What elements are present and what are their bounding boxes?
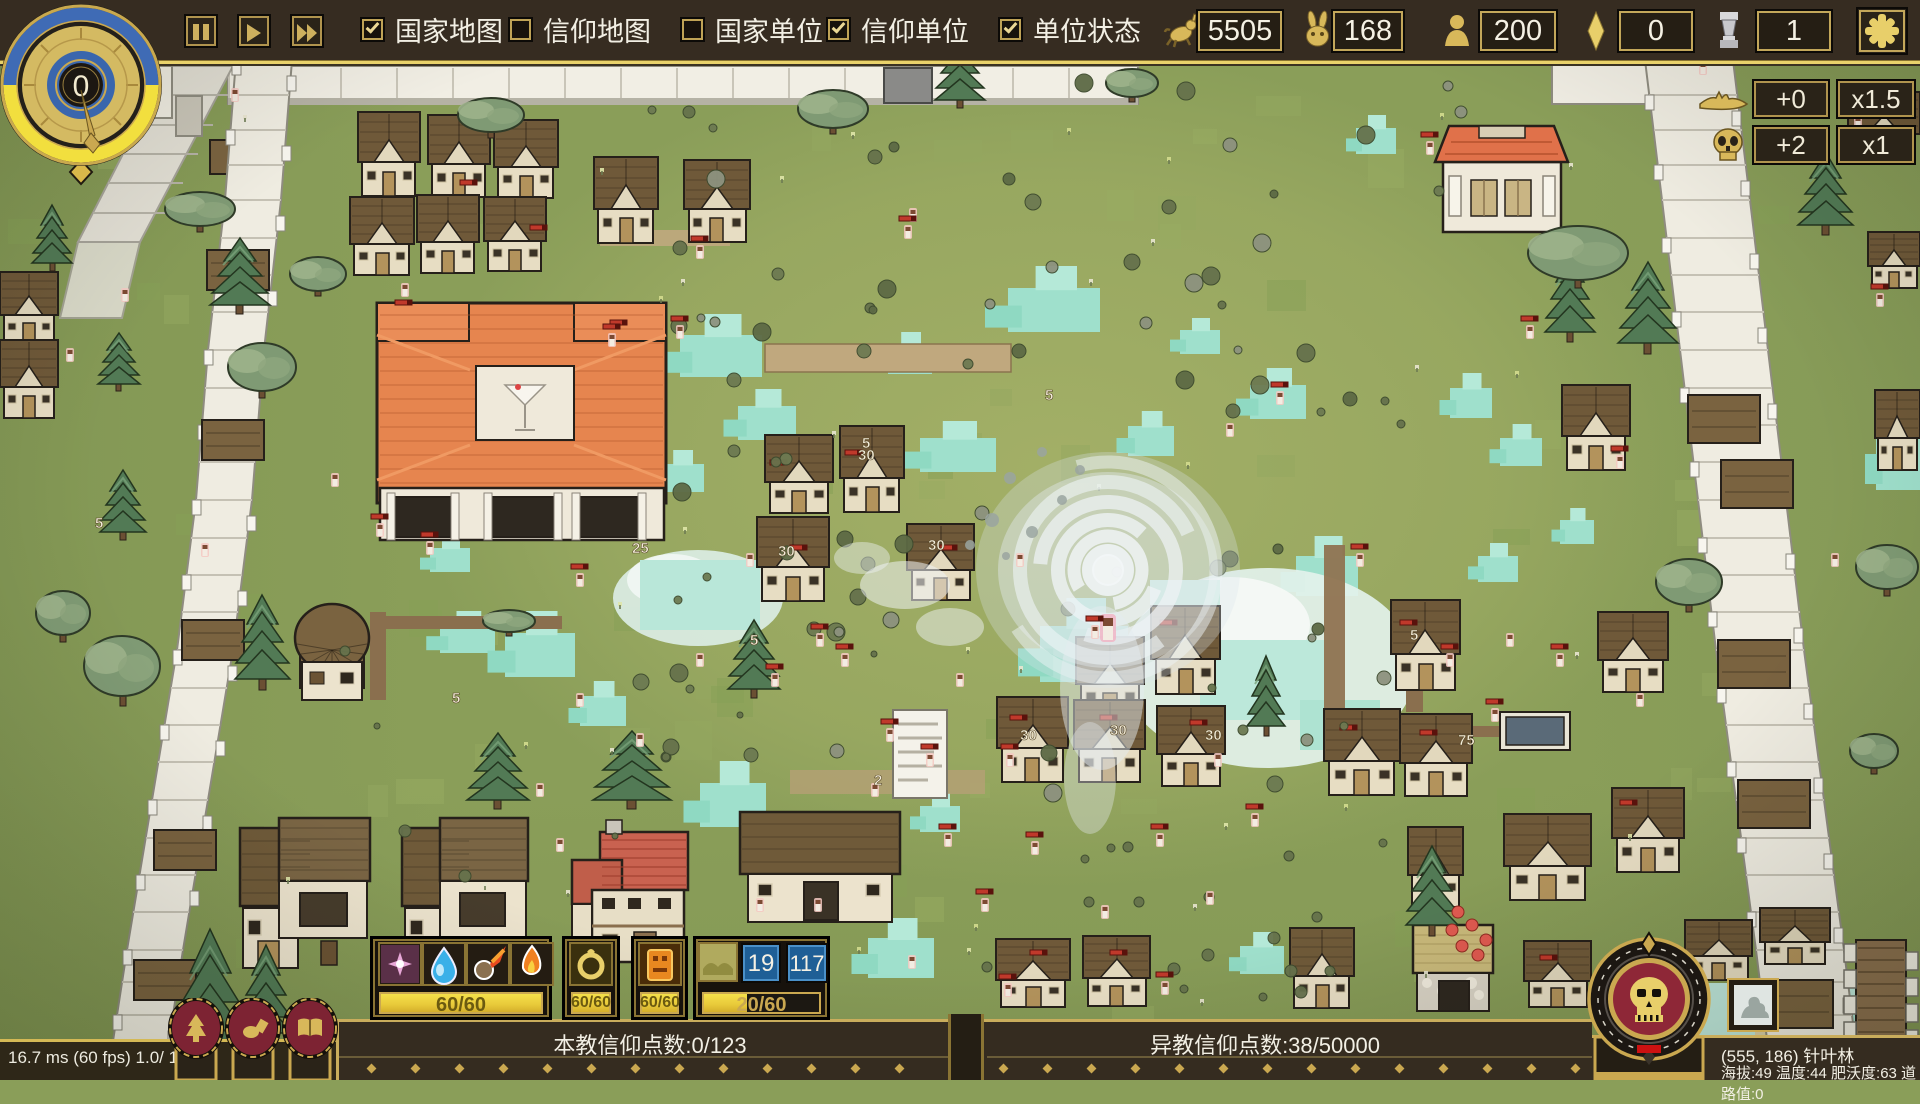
- svg-text:0: 0: [73, 70, 90, 103]
